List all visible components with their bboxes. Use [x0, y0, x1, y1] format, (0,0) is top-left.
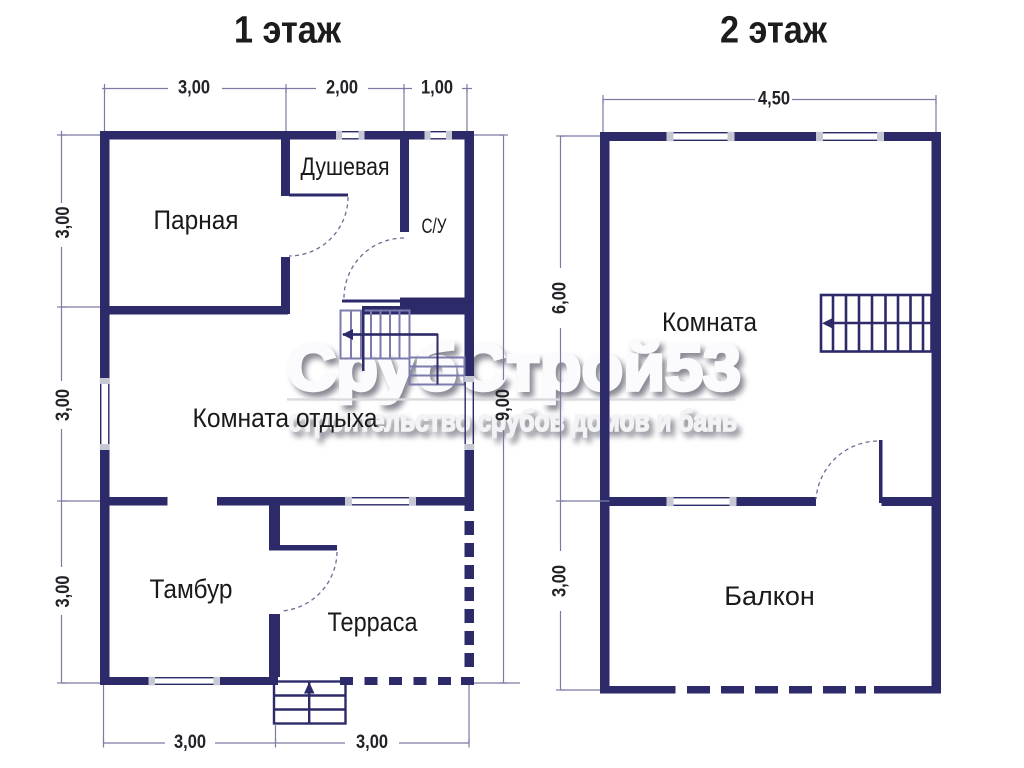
svg-text:Балкон: Балкон — [724, 581, 815, 611]
svg-text:3,00: 3,00 — [53, 207, 74, 239]
svg-text:Тамбур: Тамбур — [150, 574, 233, 604]
svg-text:1,00: 1,00 — [421, 78, 453, 99]
svg-text:Комната: Комната — [662, 307, 758, 337]
svg-text:3,00: 3,00 — [53, 389, 74, 421]
svg-text:1 этаж: 1 этаж — [234, 10, 342, 52]
svg-text:Парная: Парная — [154, 205, 239, 235]
svg-text:3,00: 3,00 — [356, 732, 388, 753]
svg-text:9,00: 9,00 — [493, 389, 514, 421]
svg-text:2 этаж: 2 этаж — [720, 10, 828, 52]
svg-text:4,50: 4,50 — [758, 89, 790, 110]
svg-text:6,00: 6,00 — [550, 282, 571, 314]
svg-text:3,00: 3,00 — [178, 78, 210, 99]
svg-text:3,00: 3,00 — [174, 732, 206, 753]
svg-text:СрубСтрой53: СрубСтрой53 — [287, 330, 741, 404]
svg-text:Терраса: Терраса — [328, 607, 419, 637]
svg-text:2,00: 2,00 — [326, 78, 358, 99]
svg-text:Комната отдыха: Комната отдыха — [193, 403, 379, 433]
svg-text:3,00: 3,00 — [550, 565, 571, 597]
svg-text:3,00: 3,00 — [53, 576, 74, 608]
svg-text:С/У: С/У — [422, 215, 447, 238]
svg-text:Душевая: Душевая — [301, 153, 390, 181]
